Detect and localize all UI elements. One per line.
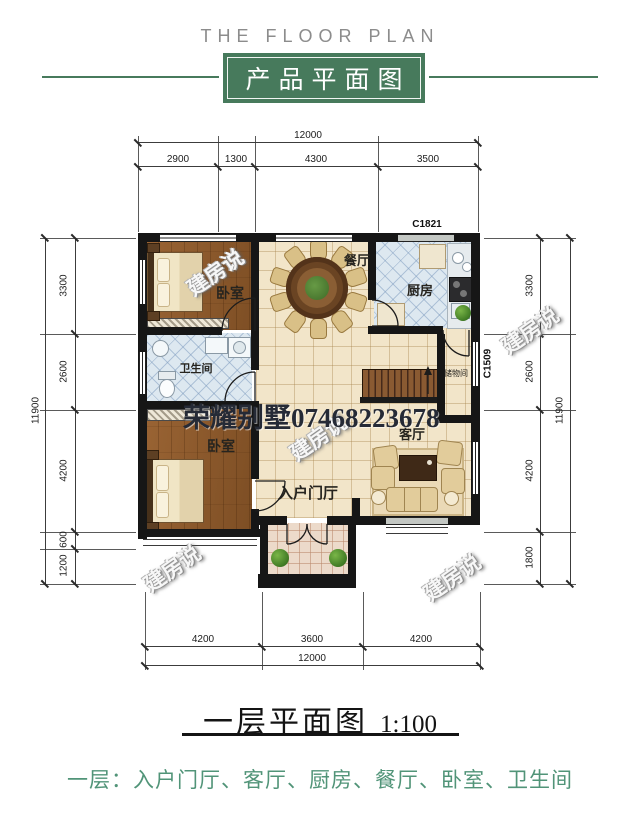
dim-ext bbox=[40, 238, 136, 239]
nightstand bbox=[147, 311, 160, 321]
dim-label: 11900 bbox=[31, 381, 42, 441]
title-banner: 产品平面图 bbox=[223, 53, 425, 103]
caption-underline bbox=[182, 733, 459, 736]
window-c1821 bbox=[398, 234, 454, 242]
bed-headboard bbox=[148, 253, 154, 311]
pillow bbox=[156, 465, 169, 491]
dim-label: 4300 bbox=[286, 154, 346, 165]
porch-wall bbox=[258, 574, 356, 588]
toilet bbox=[159, 379, 175, 398]
bush bbox=[329, 549, 347, 567]
wall bbox=[368, 326, 443, 334]
nightstand bbox=[146, 450, 159, 460]
dim-ext bbox=[218, 136, 219, 232]
coffee-table bbox=[399, 455, 437, 481]
window bbox=[139, 260, 146, 304]
dim-label: 1800 bbox=[525, 528, 536, 588]
porch-wall bbox=[348, 525, 356, 574]
dim-label: 4200 bbox=[59, 441, 70, 501]
wall bbox=[251, 335, 259, 370]
dim-line bbox=[45, 238, 46, 584]
dim-ext bbox=[40, 584, 136, 585]
rooms-summary: 一层：入户门厅、客厅、厨房、餐厅、卧室、卫生间 bbox=[0, 764, 640, 794]
dim-line bbox=[145, 646, 480, 647]
room-label-storage: 储物间 bbox=[436, 368, 476, 379]
table-centerpiece bbox=[305, 276, 329, 300]
side-table bbox=[444, 491, 459, 506]
dim-line bbox=[138, 142, 478, 143]
dim-ext bbox=[378, 136, 379, 232]
header-line-right bbox=[429, 76, 598, 78]
floor-plan-page: THE FLOOR PLAN 产品平面图 bbox=[0, 0, 640, 832]
dim-ext bbox=[138, 136, 139, 232]
wall bbox=[437, 415, 472, 423]
dim-ext bbox=[40, 410, 136, 411]
dim-label: 3300 bbox=[59, 256, 70, 316]
window-sill bbox=[386, 527, 448, 534]
dim-label: 4200 bbox=[173, 634, 233, 645]
kitchen-cabinet bbox=[377, 303, 405, 326]
window bbox=[276, 234, 352, 242]
window bbox=[160, 234, 236, 242]
dim-label: 1300 bbox=[206, 154, 266, 165]
pillow bbox=[156, 492, 169, 518]
table-decor bbox=[427, 460, 432, 465]
dim-label: 12000 bbox=[278, 130, 338, 141]
table-top bbox=[297, 268, 337, 308]
armchair bbox=[441, 468, 465, 494]
window bbox=[472, 442, 479, 494]
kitchen-sink bbox=[452, 252, 464, 264]
window bbox=[139, 352, 146, 394]
dim-label: 12000 bbox=[282, 653, 342, 664]
burner bbox=[453, 281, 460, 288]
dim-label: 11900 bbox=[555, 381, 566, 441]
page-title: 产品平面图 bbox=[227, 57, 421, 99]
wall bbox=[256, 516, 287, 525]
sofa-cushion-line bbox=[420, 488, 421, 511]
bush bbox=[271, 549, 289, 567]
dim-ext bbox=[262, 592, 263, 670]
dim-ext bbox=[40, 549, 136, 550]
dim-ext bbox=[478, 136, 479, 232]
dim-label: 2600 bbox=[59, 342, 70, 402]
side-table bbox=[371, 490, 386, 505]
bed-headboard bbox=[147, 460, 153, 522]
porch-wall bbox=[260, 525, 268, 574]
bed bbox=[146, 459, 204, 523]
burner bbox=[460, 290, 467, 297]
room-label-dining: 餐厅 bbox=[327, 250, 387, 269]
window-code-top: C1821 bbox=[404, 219, 450, 230]
sofa bbox=[386, 487, 438, 512]
plant bbox=[455, 305, 471, 321]
stove bbox=[449, 277, 472, 302]
washing-machine bbox=[228, 337, 251, 358]
dim-label: 3300 bbox=[525, 256, 536, 316]
armchair bbox=[436, 440, 464, 467]
bath-counter bbox=[205, 337, 228, 354]
wall bbox=[138, 327, 222, 335]
wall bbox=[352, 498, 360, 525]
dim-ext bbox=[40, 334, 136, 335]
washer-drum bbox=[233, 341, 246, 354]
english-title: THE FLOOR PLAN bbox=[0, 26, 640, 47]
watermark-brand: 建房说 bbox=[404, 537, 500, 617]
window bbox=[386, 517, 448, 525]
dim-ext bbox=[255, 136, 256, 232]
dim-ext bbox=[363, 592, 364, 670]
fridge bbox=[419, 244, 446, 269]
dim-line bbox=[570, 238, 571, 584]
watermark-contact: 荣耀别墅07468223678 bbox=[183, 396, 440, 435]
dim-label: 2900 bbox=[148, 154, 208, 165]
room-label-bathroom: 卫生间 bbox=[166, 360, 226, 376]
dim-ext bbox=[484, 238, 576, 239]
dim-line bbox=[145, 665, 480, 666]
sofa-cushion-line bbox=[404, 488, 405, 511]
nightstand bbox=[147, 243, 160, 253]
washbasin bbox=[152, 340, 169, 357]
room-label-kitchen: 厨房 bbox=[390, 280, 450, 299]
room-label-bedroom2: 卧室 bbox=[191, 436, 251, 456]
dim-label: 1200 bbox=[59, 536, 70, 596]
window-c1509 bbox=[472, 342, 479, 386]
pillow bbox=[157, 258, 170, 282]
room-label-entry: 入户门厅 bbox=[268, 482, 348, 503]
chair bbox=[310, 318, 327, 339]
dim-label: 3600 bbox=[282, 634, 342, 645]
dim-ext bbox=[40, 532, 136, 533]
dim-label: 4200 bbox=[391, 634, 451, 645]
wall bbox=[251, 509, 259, 537]
dim-label: 3500 bbox=[398, 154, 458, 165]
header-line-left bbox=[42, 76, 219, 78]
dim-ext bbox=[480, 592, 481, 670]
dim-label: 4200 bbox=[525, 441, 536, 501]
dim-line bbox=[138, 166, 478, 167]
